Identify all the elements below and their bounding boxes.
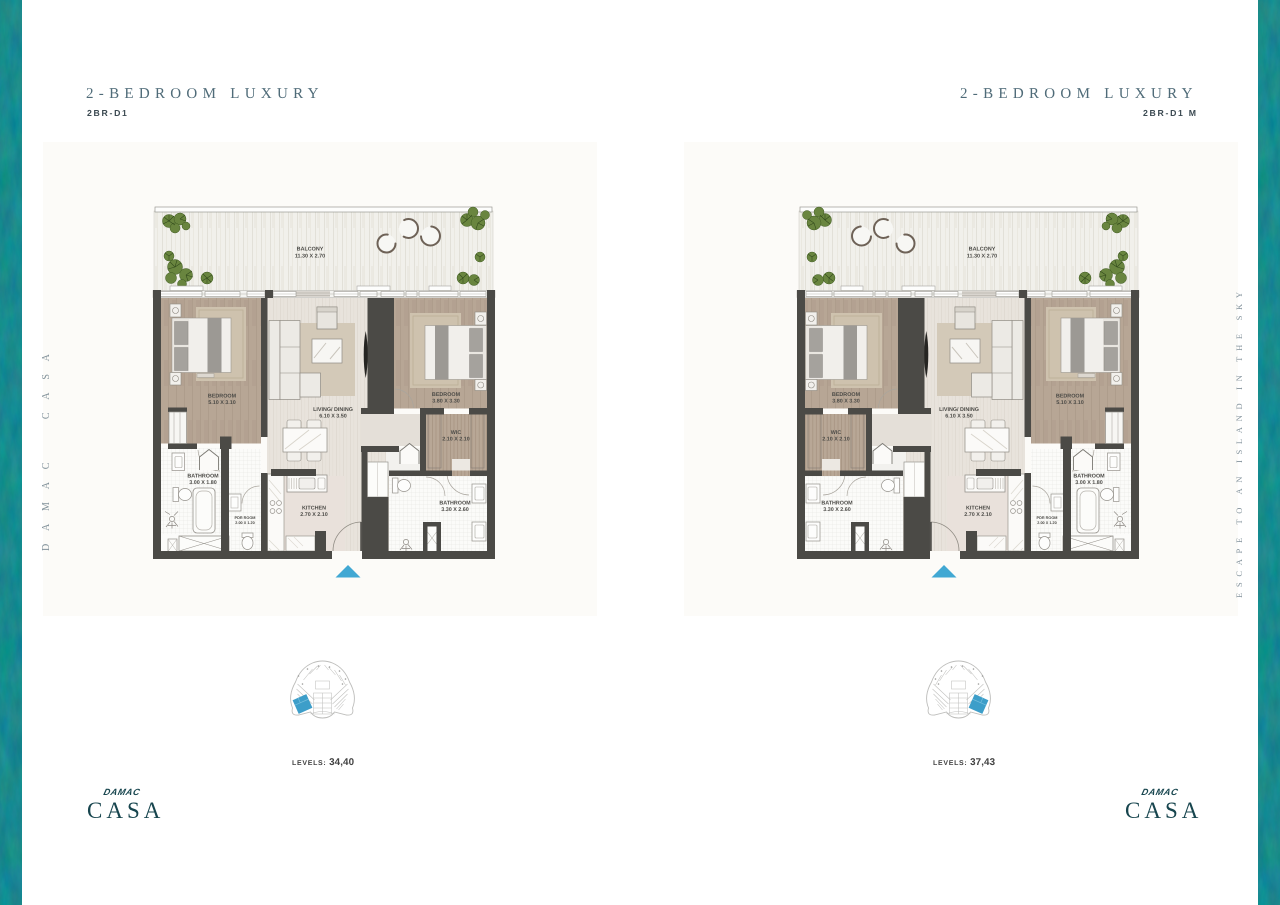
svg-text:3.30 X 2.60: 3.30 X 2.60 xyxy=(823,507,851,513)
svg-text:KITCHEN: KITCHEN xyxy=(302,506,326,512)
svg-text:11.30 X 2.70: 11.30 X 2.70 xyxy=(295,254,325,260)
svg-text:BATHROOM: BATHROOM xyxy=(439,501,471,507)
svg-text:2.70 X 2.10: 2.70 X 2.10 xyxy=(964,512,992,518)
svg-text:3.00 X 1.80: 3.00 X 1.80 xyxy=(1075,480,1103,486)
svg-text:11.30 X 2.70: 11.30 X 2.70 xyxy=(967,254,997,260)
svg-text:2.00 X 1.20: 2.00 X 1.20 xyxy=(1037,521,1056,525)
svg-text:BATHROOM: BATHROOM xyxy=(821,501,853,507)
svg-text:6.10 X 3.50: 6.10 X 3.50 xyxy=(319,414,347,420)
svg-text:LIVING/ DINING: LIVING/ DINING xyxy=(939,407,979,413)
svg-text:3.30 X 2.60: 3.30 X 2.60 xyxy=(441,507,469,513)
svg-text:LIVING/ DINING: LIVING/ DINING xyxy=(313,407,353,413)
svg-text:BEDROOM: BEDROOM xyxy=(432,392,461,398)
svg-text:BEDROOM: BEDROOM xyxy=(1056,394,1085,400)
svg-text:BALCONY: BALCONY xyxy=(297,247,324,253)
svg-text:BEDROOM: BEDROOM xyxy=(832,392,861,398)
svg-text:BATHROOM: BATHROOM xyxy=(187,474,219,480)
svg-text:6.10 X 3.50: 6.10 X 3.50 xyxy=(945,414,973,420)
svg-text:WIC: WIC xyxy=(451,430,462,436)
svg-text:3.00 X 1.80: 3.00 X 1.80 xyxy=(189,480,217,486)
svg-text:KITCHEN: KITCHEN xyxy=(966,506,990,512)
svg-text:5.10 X 3.10: 5.10 X 3.10 xyxy=(1056,400,1084,406)
svg-text:BEDROOM: BEDROOM xyxy=(208,394,237,400)
svg-text:BALCONY: BALCONY xyxy=(969,247,996,253)
svg-text:2.10 X 2.10: 2.10 X 2.10 xyxy=(822,437,850,443)
svg-text:5.10 X 3.10: 5.10 X 3.10 xyxy=(208,400,236,406)
svg-text:PDR ROOM: PDR ROOM xyxy=(235,516,256,520)
svg-text:2.00 X 1.20: 2.00 X 1.20 xyxy=(235,521,254,525)
svg-text:BATHROOM: BATHROOM xyxy=(1073,474,1105,480)
svg-text:3.80 X 3.30: 3.80 X 3.30 xyxy=(432,399,460,405)
svg-text:3.80 X 3.30: 3.80 X 3.30 xyxy=(832,399,860,405)
svg-text:PDR ROOM: PDR ROOM xyxy=(1037,516,1058,520)
svg-text:2.10 X 2.10: 2.10 X 2.10 xyxy=(442,437,470,443)
svg-text:WIC: WIC xyxy=(831,430,842,436)
svg-text:2.70 X 2.10: 2.70 X 2.10 xyxy=(300,512,328,518)
